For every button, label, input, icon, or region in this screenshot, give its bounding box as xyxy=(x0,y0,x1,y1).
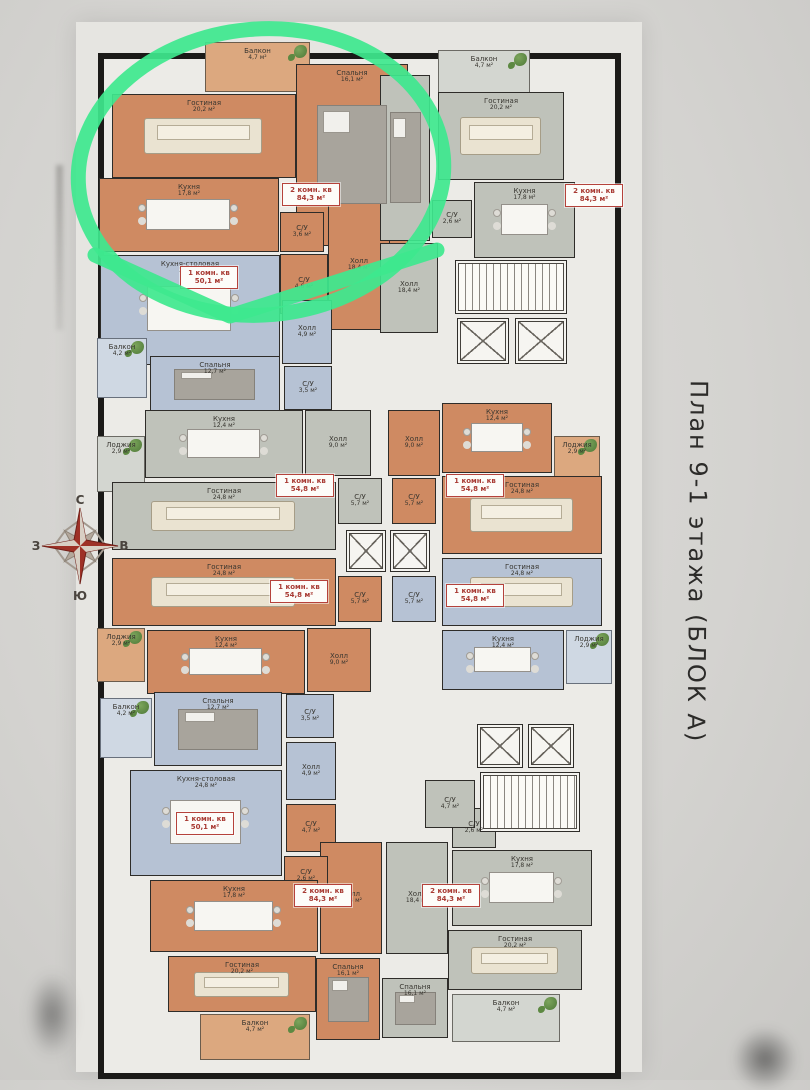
room-area: 12,4 м² xyxy=(443,416,551,423)
room-area: 4,7 м² xyxy=(287,828,335,835)
sofa-icon xyxy=(470,498,573,532)
bed-icon xyxy=(174,369,255,400)
room-balcony-d1: Балкон4,2 м² xyxy=(100,698,152,758)
sofa-icon xyxy=(471,947,557,973)
room-label: Гостиная20,2 м² xyxy=(439,97,563,112)
room-name: Спальня xyxy=(151,361,279,369)
photo-shadow-bottom-right xyxy=(733,1028,797,1090)
plan-title: План 9-1 этажа (БЛОК А) xyxy=(681,380,712,780)
plant-icon xyxy=(584,439,597,452)
room-area: 4,7 м² xyxy=(453,1007,559,1014)
room-label: С/У5,7 м² xyxy=(339,591,381,606)
room-label: Кухня-столовая24,8 м² xyxy=(131,775,281,790)
room-area: 3,6 м² xyxy=(281,232,323,239)
elev-icon xyxy=(349,533,383,569)
room-area: 18,4 м² xyxy=(381,288,437,295)
room-name: Кухня xyxy=(100,183,278,191)
room-label: С/У5,7 м² xyxy=(339,493,381,508)
room-area: 24,8 м² xyxy=(131,783,281,790)
room-kitchen-c1: Кухня12,4 м² xyxy=(145,410,303,478)
room-name: Холл xyxy=(306,435,370,443)
room-name: Кухня xyxy=(453,855,591,863)
elev-icon xyxy=(531,727,571,765)
plant-icon xyxy=(131,341,144,354)
room-area: 3,5 м² xyxy=(287,716,333,723)
apartment-area: 84,3 м² xyxy=(296,895,350,903)
room-name: Кухня-столовая xyxy=(131,775,281,783)
room-label: Холл4,9 м² xyxy=(287,763,335,778)
room-name: Гостиная xyxy=(449,935,581,943)
room-stairs-1 xyxy=(455,260,567,314)
room-hall-c2: Холл9,0 м² xyxy=(388,410,440,476)
room-name: Кухня xyxy=(146,415,302,423)
apartment-tag: 2 комн. кв84,3 м² xyxy=(565,184,623,207)
room-wc-c4: С/У5,7 м² xyxy=(392,576,436,622)
room-wc-c2: С/У5,7 м² xyxy=(392,478,436,524)
room-kitchen-a2: Кухня17,8 м² xyxy=(474,182,575,258)
elev-icon xyxy=(393,533,427,569)
apartment-type: 2 комн. кв xyxy=(430,887,472,895)
room-label: Гостиная24,8 м² xyxy=(113,563,335,578)
room-area: 4,7 м² xyxy=(206,55,309,62)
room-bedroom-b1: Спальня12,7 м² xyxy=(150,356,280,412)
room-area: 4,9 м² xyxy=(283,332,331,339)
apartment-tag: 1 комн. кв54,8 м² xyxy=(270,580,328,603)
room-label: С/У3,6 м² xyxy=(281,224,323,239)
room-label: Холл18,4 м² xyxy=(381,280,437,295)
room-hall-c1: Холл9,0 м² xyxy=(305,410,371,476)
room-name: Холл xyxy=(389,435,439,443)
bed-icon xyxy=(328,977,368,1022)
room-balcony-b1: Балкон4,2 м² xyxy=(97,338,147,398)
compass-east-label: В xyxy=(119,539,128,553)
photo-shadow-bottom-left xyxy=(28,972,76,1057)
elev-icon xyxy=(480,727,520,765)
room-name: Холл xyxy=(308,652,370,660)
room-elevator-6 xyxy=(528,724,574,768)
elev-icon xyxy=(518,321,564,361)
apartment-type: 2 комн. кв xyxy=(290,186,332,194)
apartment-tag: 2 комн. кв84,3 м² xyxy=(282,183,340,206)
room-name: С/У xyxy=(433,211,471,219)
table-icon xyxy=(501,204,549,236)
room-name: С/У xyxy=(393,493,435,501)
apartment-type: 1 комн. кв xyxy=(454,587,496,595)
plant-icon xyxy=(129,439,142,452)
apartment-tag: 1 комн. кв50,1 м² xyxy=(180,266,238,289)
plant-icon xyxy=(294,45,307,58)
room-wc-a2: С/У2,6 м² xyxy=(432,200,472,238)
apartment-tag: 2 комн. кв84,3 м² xyxy=(422,884,480,907)
apartment-area: 84,3 м² xyxy=(424,895,478,903)
compass-rose: С Ю З В xyxy=(28,488,132,604)
room-label: С/У4,7 м² xyxy=(426,796,474,811)
table-icon xyxy=(146,199,230,230)
floor-plan: Балкон4,7 м²Спальня16,1 м²Гостиная20,2 м… xyxy=(95,38,625,1066)
room-area: 17,8 м² xyxy=(453,863,591,870)
apartment-area: 84,3 м² xyxy=(567,195,621,203)
apartment-tag: 2 комн. кв84,3 м² xyxy=(294,884,352,907)
room-bedroom-d3: Спальня16,1 м² xyxy=(382,978,448,1038)
apartment-type: 2 комн. кв xyxy=(302,887,344,895)
room-name: Холл xyxy=(381,280,437,288)
room-kitchen-c3: Кухня12,4 м² xyxy=(147,630,305,694)
room-name: С/У xyxy=(285,868,327,876)
room-name: С/У xyxy=(281,276,327,284)
room-name: Кухня xyxy=(151,885,317,893)
room-name: Гостиная xyxy=(443,563,601,571)
room-name: С/У xyxy=(393,591,435,599)
room-label: С/У4,7 м² xyxy=(287,820,335,835)
room-name: С/У xyxy=(287,820,335,828)
room-area: 5,7 м² xyxy=(339,599,381,606)
sofa-icon xyxy=(144,118,262,154)
room-label: Кухня17,8 м² xyxy=(475,187,574,202)
sofa-icon xyxy=(460,117,541,155)
apartment-area: 54,8 м² xyxy=(448,595,502,603)
room-living-d2: Гостиная20,2 м² xyxy=(168,956,316,1012)
plant-icon xyxy=(514,53,527,66)
room-wc-c3: С/У5,7 м² xyxy=(338,576,382,622)
room-hall-c3: Холл9,0 м² xyxy=(307,628,371,692)
plant-icon xyxy=(294,1017,307,1030)
room-name: Кухня xyxy=(443,635,563,643)
room-label: С/У5,7 м² xyxy=(393,493,435,508)
plant-icon xyxy=(129,631,142,644)
room-area: 17,8 м² xyxy=(475,195,574,202)
room-wc1-a1: С/У3,6 м² xyxy=(280,212,324,252)
room-name: Гостиная xyxy=(113,99,295,107)
room-elevator-5 xyxy=(477,724,523,768)
room-elevator-4 xyxy=(390,530,430,572)
plant-icon xyxy=(136,701,149,714)
room-kitchen-c2: Кухня12,4 м² xyxy=(442,403,552,473)
room-name: Гостиная xyxy=(169,961,315,969)
apartment-area: 84,3 м² xyxy=(284,194,338,202)
room-area: 5,7 м² xyxy=(393,501,435,508)
room-area: 20,2 м² xyxy=(439,105,563,112)
room-name: Холл xyxy=(283,324,331,332)
apartment-type: 1 комн. кв xyxy=(284,477,326,485)
room-name: Гостиная xyxy=(113,563,335,571)
room-area: 2,6 м² xyxy=(433,219,471,226)
room-area: 4,7 м² xyxy=(201,1027,309,1034)
room-name: Спальня xyxy=(317,963,379,971)
stairs-icon xyxy=(458,263,564,311)
room-name: Холл xyxy=(287,763,335,771)
room-label: Кухня12,4 м² xyxy=(443,408,551,423)
room-hall-b1: Холл4,9 м² xyxy=(282,300,332,364)
apartment-tag: 1 комн. кв50,1 м² xyxy=(176,812,234,835)
room-living-a1: Гостиная20,2 м² xyxy=(112,94,296,178)
apartment-area: 50,1 м² xyxy=(182,277,236,285)
room-wc-d4: С/У4,7 м² xyxy=(425,780,475,828)
room-bedroom-d1: Спальня12,7 м² xyxy=(154,692,282,766)
room-label: С/У4,6 м² xyxy=(281,276,327,291)
floor-plan-photo: { "title": { "text": "План 9-1 этажа (БЛ… xyxy=(0,0,810,1080)
apartment-type: 1 комн. кв xyxy=(278,583,320,591)
room-label: Холл9,0 м² xyxy=(306,435,370,450)
table-icon xyxy=(471,423,523,452)
room-label: С/У5,7 м² xyxy=(393,591,435,606)
room-living-d3: Гостиная20,2 м² xyxy=(448,930,582,990)
stairs-icon xyxy=(483,775,577,829)
room-area: 4,9 м² xyxy=(287,771,335,778)
room-name: Спальня xyxy=(155,697,281,705)
plant-icon xyxy=(544,997,557,1010)
bed-icon xyxy=(178,709,258,750)
room-area: 4,6 м² xyxy=(281,284,327,291)
room-area: 17,8 м² xyxy=(151,893,317,900)
room-name: С/У xyxy=(285,380,331,388)
room-name: Кухня xyxy=(443,408,551,416)
room-wc-c1: С/У5,7 м² xyxy=(338,478,382,524)
room-name: С/У xyxy=(287,708,333,716)
compass-south-label: Ю xyxy=(73,589,87,603)
room-name: Кухня xyxy=(148,635,304,643)
room-area: 17,8 м² xyxy=(100,191,278,198)
table-icon xyxy=(489,872,554,904)
room-hall-d1: Холл4,9 м² xyxy=(286,742,336,800)
room-kitchen-d2: Кухня17,8 м² xyxy=(150,880,318,952)
room-name: Кухня xyxy=(475,187,574,195)
sofa-icon xyxy=(151,501,295,531)
room-balcony-a2: Балкон4,7 м² xyxy=(438,50,530,98)
room-wc-d1: С/У3,5 м² xyxy=(286,694,334,738)
room-label: Балкон4,7 м² xyxy=(201,1019,309,1034)
room-label: Гостиная24,8 м² xyxy=(443,563,601,578)
apartment-tag: 1 комн. кв54,8 м² xyxy=(446,584,504,607)
room-lodzhia-c3: Лоджия2,9 м² xyxy=(97,628,145,682)
room-living-a2: Гостиная20,2 м² xyxy=(438,92,564,180)
room-label: С/У2,6 м² xyxy=(433,211,471,226)
bed-icon xyxy=(395,992,437,1025)
room-stairs-2 xyxy=(480,772,580,832)
elev-icon xyxy=(460,321,506,361)
apartment-type: 2 комн. кв xyxy=(573,187,615,195)
apartment-area: 54,8 м² xyxy=(448,485,502,493)
compass-west-label: З xyxy=(32,539,41,553)
room-area: 4,7 м² xyxy=(426,804,474,811)
room-hall-a2: Холл18,4 м² xyxy=(380,243,438,333)
apartment-type: 1 комн. кв xyxy=(188,269,230,277)
room-elevator-2 xyxy=(515,318,567,364)
apartment-area: 50,1 м² xyxy=(178,823,232,831)
table-icon xyxy=(147,286,231,331)
table-icon xyxy=(474,647,531,672)
room-name: С/У xyxy=(426,796,474,804)
room-label: Холл4,9 м² xyxy=(283,324,331,339)
table-icon xyxy=(189,648,263,675)
room-area: 9,0 м² xyxy=(306,443,370,450)
room-name: С/У xyxy=(281,224,323,232)
room-label: Кухня12,4 м² xyxy=(146,415,302,430)
apartment-area: 54,8 м² xyxy=(272,591,326,599)
room-label: Кухня17,8 м² xyxy=(453,855,591,870)
room-label: Холл9,0 м² xyxy=(389,435,439,450)
room-kitchen-a1: Кухня17,8 м² xyxy=(99,178,279,252)
room-lodzhia-c4: Лоджия2,9 м² xyxy=(566,630,612,684)
room-label: Кухня17,8 м² xyxy=(100,183,278,198)
apartment-type: 1 комн. кв xyxy=(184,815,226,823)
apartment-area: 54,8 м² xyxy=(278,485,332,493)
plant-icon xyxy=(596,633,609,646)
room-balcony-d3: Балкон4,7 м² xyxy=(452,994,560,1042)
table-icon xyxy=(194,901,272,931)
room-label: С/У3,5 м² xyxy=(285,380,331,395)
compass-north-label: С xyxy=(76,493,85,507)
table-icon xyxy=(187,429,261,457)
room-area: 5,7 м² xyxy=(339,501,381,508)
room-elevator-1 xyxy=(457,318,509,364)
room-label: Гостиная20,2 м² xyxy=(113,99,295,114)
room-label: Кухня17,8 м² xyxy=(151,885,317,900)
room-kitchen-c4: Кухня12,4 м² xyxy=(442,630,564,690)
room-name: Балкон xyxy=(201,1019,309,1027)
room-area: 9,0 м² xyxy=(389,443,439,450)
room-name: С/У xyxy=(339,493,381,501)
room-elevator-3 xyxy=(346,530,386,572)
photo-shadow-left-edge xyxy=(56,165,63,330)
room-area: 5,7 м² xyxy=(393,599,435,606)
room-area: 9,0 м² xyxy=(308,660,370,667)
apartment-tag: 1 комн. кв54,8 м² xyxy=(276,474,334,497)
room-name: Гостиная xyxy=(439,97,563,105)
room-label: С/У3,5 м² xyxy=(287,708,333,723)
room-area: 3,5 м² xyxy=(285,388,331,395)
room-name: С/У xyxy=(339,591,381,599)
apartment-tag: 1 комн. кв54,8 м² xyxy=(446,474,504,497)
apartment-type: 1 комн. кв xyxy=(454,477,496,485)
room-balcony-d2: Балкон4,7 м² xyxy=(200,1014,310,1060)
room-balcony-a1: Балкон4,7 м² xyxy=(205,42,310,92)
bed-icon xyxy=(390,112,422,203)
sofa-icon xyxy=(194,972,289,997)
room-name: Спальня xyxy=(383,983,447,991)
room-area: 20,2 м² xyxy=(113,107,295,114)
room-wc-b1: С/У3,5 м² xyxy=(284,366,332,410)
room-bedroom-d2: Спальня16,1 м² xyxy=(316,958,380,1040)
room-label: Холл9,0 м² xyxy=(308,652,370,667)
room-label: Балкон4,7 м² xyxy=(453,999,559,1014)
room-bedroom-a2 xyxy=(380,75,430,241)
